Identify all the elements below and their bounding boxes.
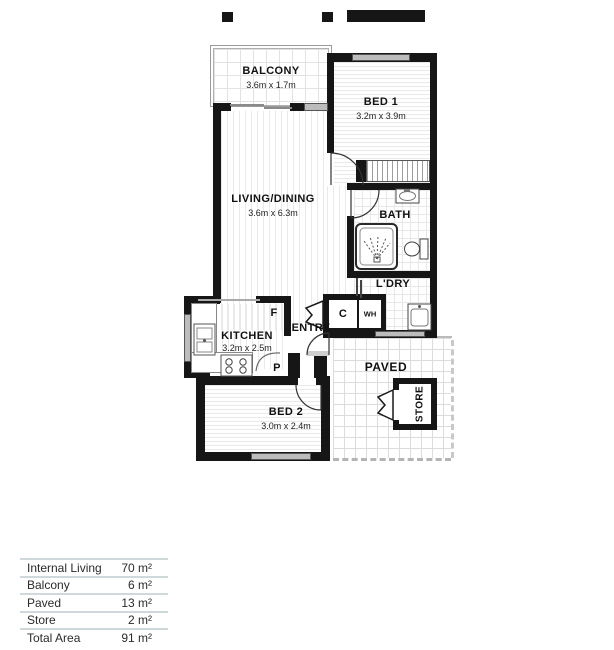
window-bed1 (352, 54, 410, 61)
wall-bed1-left (327, 53, 334, 153)
wall-bed2-left (196, 376, 205, 461)
room-label-entry: ENTRY (292, 322, 331, 334)
paved-dashed-edge-right (448, 340, 454, 458)
pocket-door-laundry (356, 278, 358, 296)
neighbour-wall-mark (322, 12, 333, 22)
label-water-heater: WH (364, 310, 377, 319)
sliding-door-laundry-paved (375, 331, 425, 337)
label-cupboard: C (339, 308, 347, 320)
wall-bed2-door-jamb (288, 353, 300, 378)
paved-edge-line (437, 336, 452, 338)
room-label-living: LIVING/DINING (231, 193, 314, 205)
wall-bed2-top (196, 376, 298, 385)
wall-right-exterior (430, 53, 437, 338)
room-label-paved: PAVED (365, 360, 408, 374)
window-kitchen (184, 314, 191, 362)
pocket-door-laundry (360, 280, 362, 298)
table-row: Total Area 91 m² (20, 628, 168, 646)
area-table: Internal Living 70 m² Balcony 6 m² Paved… (20, 558, 168, 646)
bath-floor (354, 190, 430, 271)
table-row-value: 91 m² (121, 631, 152, 645)
kitchen-counter-bottom (191, 352, 253, 373)
floor-plan-page: BALCONY 3.6m x 1.7m BED 1 3.2m x 3.9m LI… (0, 0, 614, 650)
wall-bath-bottom (347, 271, 437, 278)
table-row-value: 6 m² (128, 578, 152, 592)
window-living (304, 103, 328, 111)
table-row-label: Total Area (27, 631, 80, 645)
table-row-label: Balcony (27, 578, 70, 592)
wall-living-top (290, 103, 304, 111)
room-label-kitchen: KITCHEN (221, 330, 273, 342)
room-label-bath: BATH (379, 209, 410, 221)
room-label-laundry: L'DRY (376, 278, 410, 290)
kitchen-opening-line (198, 299, 260, 301)
table-row-label: Store (27, 613, 56, 627)
paved-dashed-edge-bottom (333, 455, 451, 461)
sliding-door-balcony (230, 104, 264, 106)
label-fridge: F (270, 307, 277, 319)
wall-bath-top (347, 183, 437, 190)
room-label-balcony: BALCONY (242, 65, 299, 77)
sliding-door-balcony (264, 107, 292, 109)
table-row-value: 70 m² (121, 561, 152, 575)
wall-living-left (213, 103, 221, 303)
table-row: Internal Living 70 m² (20, 558, 168, 576)
table-row-label: Paved (27, 596, 61, 610)
window-bed2 (251, 453, 311, 460)
balcony-inner-outline (213, 48, 329, 106)
table-row-label: Internal Living (27, 561, 102, 575)
bed2-floor (205, 385, 321, 452)
store-door-opening (393, 390, 399, 420)
table-row: Paved 13 m² (20, 593, 168, 611)
wall-fridge-nook-right (284, 298, 291, 336)
wall-bath-left (347, 216, 354, 271)
room-label-store: STORE (415, 386, 426, 422)
room-dims-balcony: 3.6m x 1.7m (246, 80, 296, 90)
robe (366, 160, 430, 182)
room-label-bed2: BED 2 (269, 406, 303, 418)
room-dims-bed1: 3.2m x 3.9m (356, 111, 406, 121)
neighbour-wall-mark (222, 12, 233, 22)
wall-bed2-right (321, 376, 330, 461)
table-row: Store 2 m² (20, 611, 168, 629)
table-row-value: 2 m² (128, 613, 152, 627)
table-row: Balcony 6 m² (20, 576, 168, 594)
entry-threshold (307, 351, 329, 356)
wall-robe-jamb (356, 160, 366, 182)
room-dims-kitchen: 3.2m x 2.5m (222, 343, 272, 353)
table-row-value: 13 m² (121, 596, 152, 610)
neighbour-wall-mark (347, 10, 425, 22)
label-pantry: P (273, 362, 281, 374)
wall-living-top (213, 103, 231, 111)
room-label-bed1: BED 1 (364, 96, 398, 108)
room-dims-bed2: 3.0m x 2.4m (261, 421, 311, 431)
wall-bed2-door-jamb (314, 353, 327, 378)
room-dims-living: 3.6m x 6.3m (248, 208, 298, 218)
